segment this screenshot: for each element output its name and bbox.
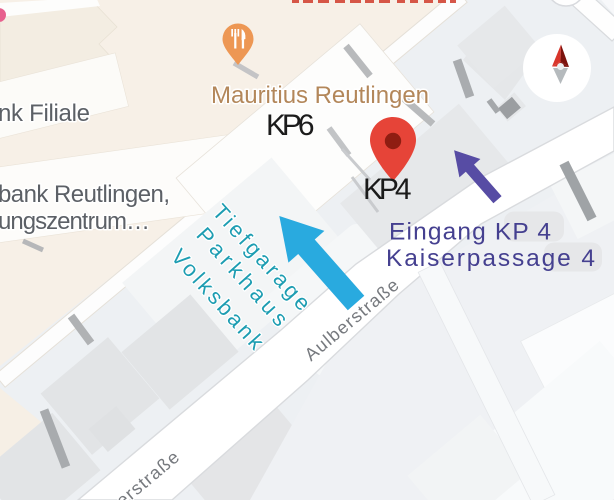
- svg-text:KP4: KP4: [363, 173, 412, 206]
- svg-text:ungszentrum…: ungszentrum…: [0, 208, 150, 235]
- svg-text:Eingang KP 4: Eingang KP 4: [389, 219, 551, 246]
- svg-text:bank Reutlingen,: bank Reutlingen,: [0, 181, 170, 208]
- svg-text:Mauritius Reutlingen: Mauritius Reutlingen: [211, 82, 429, 109]
- svg-text:Kaiserpassage 4: Kaiserpassage 4: [386, 245, 595, 272]
- svg-text:KP6: KP6: [266, 109, 315, 142]
- svg-text:nk Filiale: nk Filiale: [0, 100, 90, 127]
